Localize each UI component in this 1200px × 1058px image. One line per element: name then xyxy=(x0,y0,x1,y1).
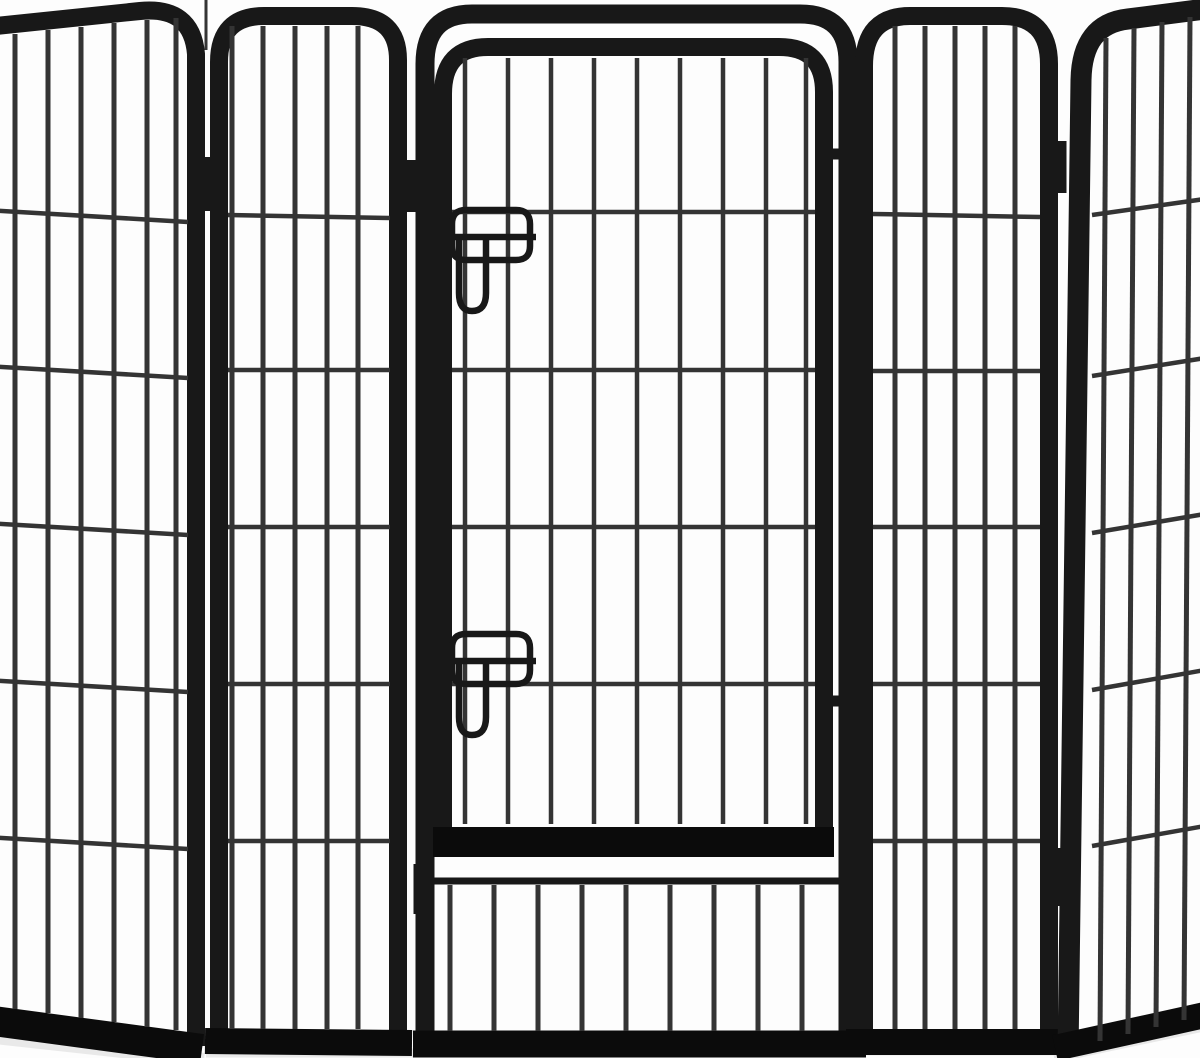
wire-horizontal xyxy=(0,680,188,692)
wire-horizontal xyxy=(1092,514,1200,533)
wire-vertical xyxy=(1100,38,1106,1041)
playpen-photo xyxy=(0,0,1200,1058)
right-return-panel xyxy=(1055,9,1200,1054)
wire-horizontal xyxy=(873,214,1040,217)
wire-horizontal xyxy=(0,837,188,849)
bottom-rail xyxy=(205,1041,412,1043)
product-photo xyxy=(0,0,1200,1058)
wire-horizontal xyxy=(1092,199,1200,215)
door-panel xyxy=(413,14,866,1044)
left-panel xyxy=(205,16,412,1043)
wire-horizontal xyxy=(228,215,390,218)
left-return-panel xyxy=(0,11,202,1049)
wire-vertical xyxy=(1128,28,1134,1034)
wire-horizontal xyxy=(0,210,188,222)
wire-horizontal xyxy=(0,523,188,535)
wire-horizontal xyxy=(0,366,188,378)
wire-vertical xyxy=(1156,22,1162,1027)
right-panel xyxy=(846,16,1062,1042)
wire-horizontal xyxy=(1092,358,1200,376)
